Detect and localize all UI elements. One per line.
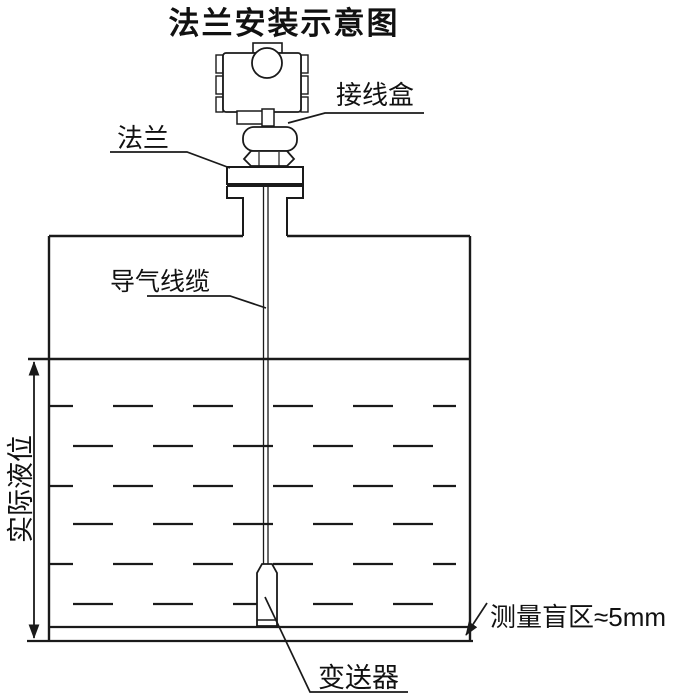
flange-label: 法兰 bbox=[117, 123, 169, 153]
diagram-svg: 法兰安装示意图 bbox=[0, 0, 700, 700]
process-connection-bulb bbox=[243, 127, 297, 151]
head-rib-icon bbox=[301, 76, 308, 94]
head-rib-icon bbox=[216, 97, 223, 112]
hex-nut bbox=[244, 151, 294, 166]
flange-installation-diagram: 法兰安装示意图 bbox=[0, 0, 700, 700]
transmitter-head bbox=[216, 43, 308, 166]
liquid-dashes bbox=[50, 406, 456, 604]
terminal-plug bbox=[262, 109, 274, 126]
flange-assembly bbox=[227, 167, 303, 236]
level-dimension: 实际液位 bbox=[6, 362, 36, 638]
junction-box-label: 接线盒 bbox=[336, 80, 414, 110]
transmitter-label: 变送器 bbox=[318, 663, 399, 693]
flange-plate bbox=[227, 167, 303, 184]
junction-box-leader bbox=[288, 113, 424, 123]
head-rib-icon bbox=[301, 97, 308, 112]
head-display-circle bbox=[252, 48, 282, 78]
air-cable-leader bbox=[147, 296, 266, 308]
head-rib-icon bbox=[216, 55, 223, 73]
actual-level-label: 实际液位 bbox=[6, 435, 36, 543]
air-guide-cable bbox=[264, 185, 269, 565]
annotations: 接线盒 法兰 导气线缆 变送器 测量盲区≈5mm bbox=[110, 80, 666, 693]
diagram-title: 法兰安装示意图 bbox=[169, 6, 400, 41]
tank-nozzle bbox=[227, 186, 303, 236]
air-cable-label: 导气线缆 bbox=[110, 268, 210, 296]
tank bbox=[27, 236, 473, 641]
blind-zone-label: 测量盲区≈5mm bbox=[490, 602, 666, 632]
flange-leader bbox=[110, 152, 230, 168]
head-rib-icon bbox=[301, 55, 308, 73]
head-rib-icon bbox=[216, 76, 223, 94]
